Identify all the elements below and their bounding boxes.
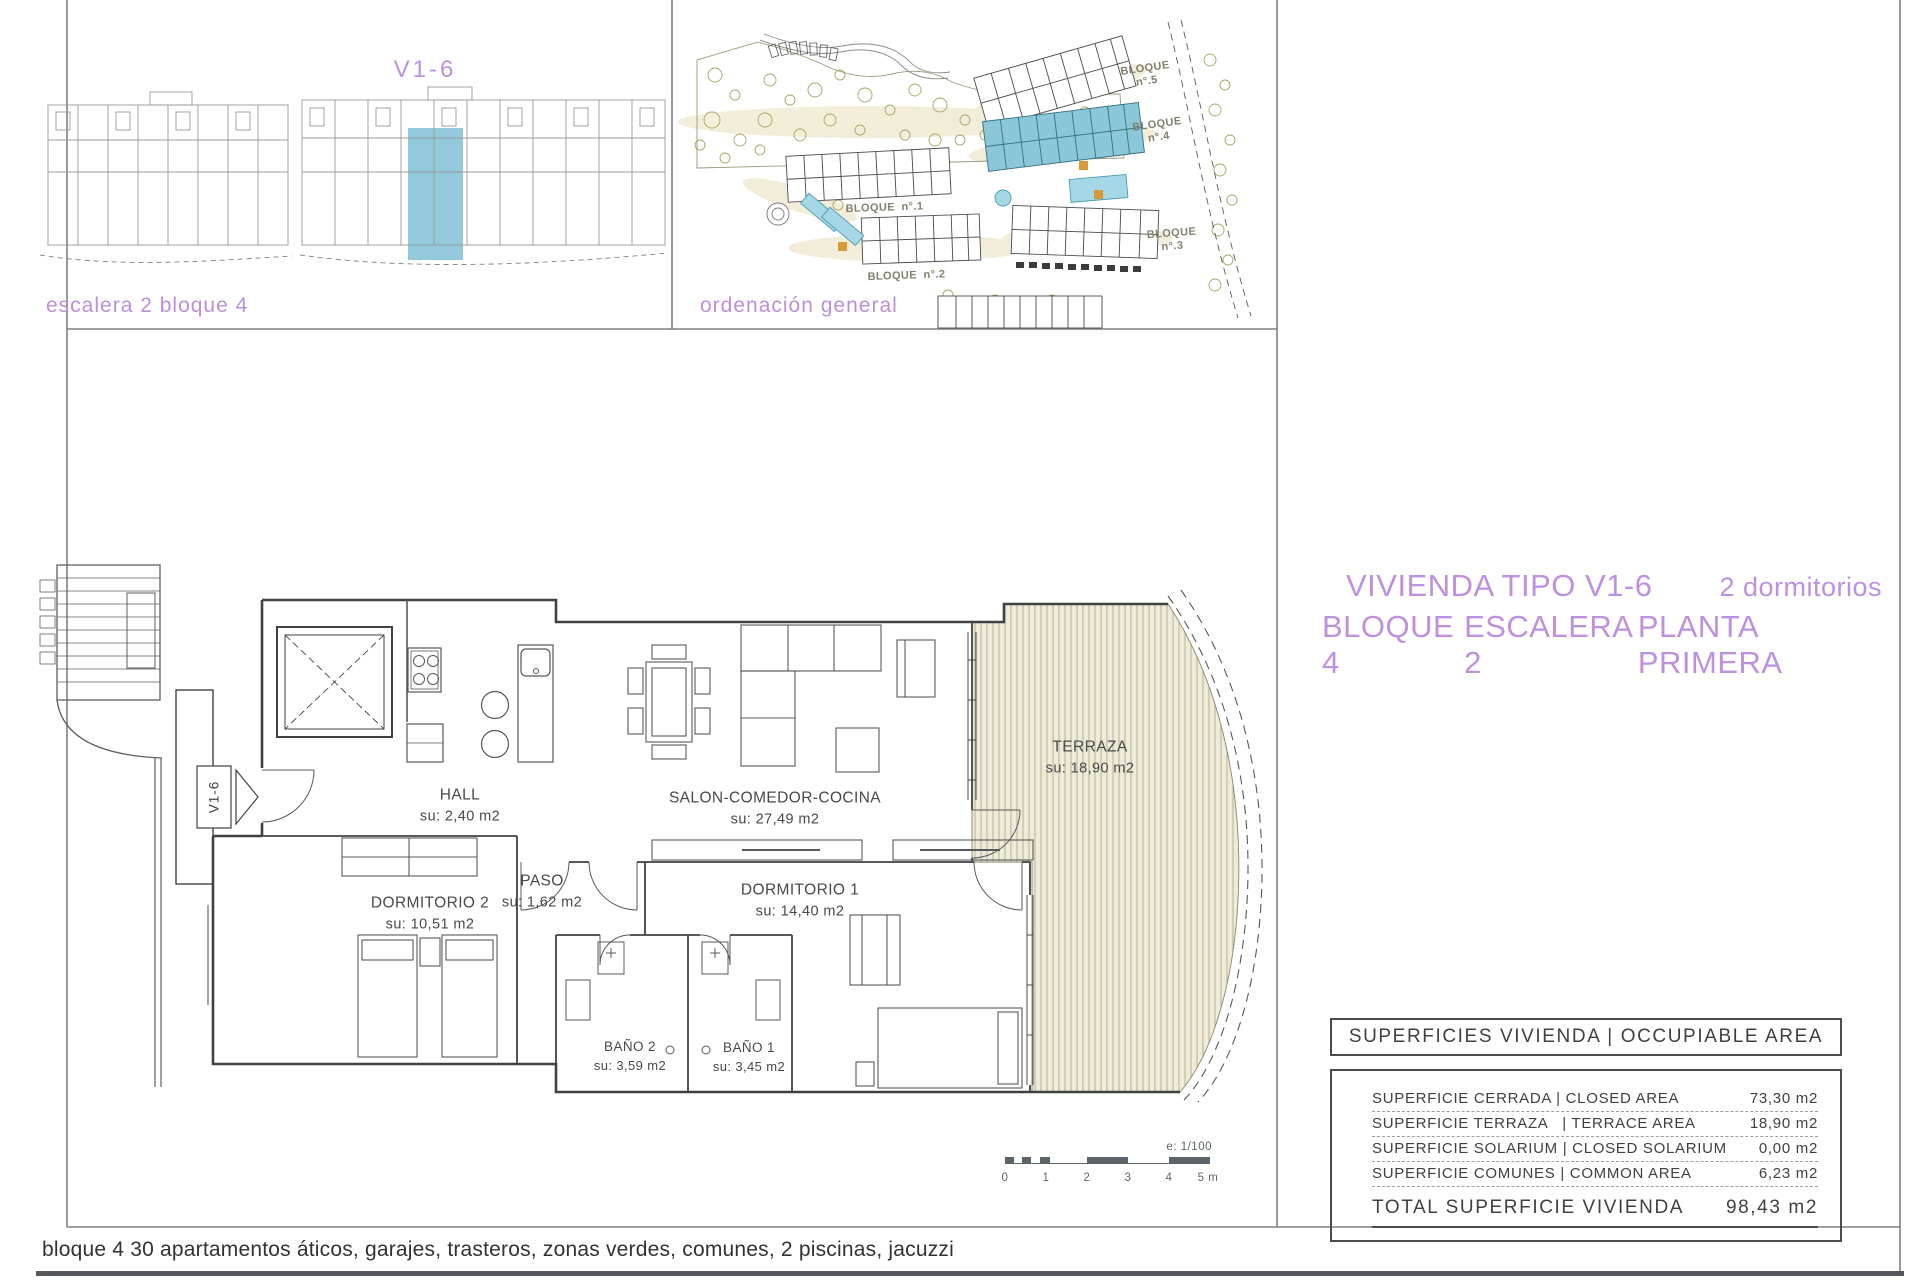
bedroom1-furniture xyxy=(850,915,1022,1088)
unit-marker-label: V1-6 xyxy=(207,781,222,814)
site-caption: ordenación general xyxy=(700,294,898,318)
table-row: SUPERFICIE TERRAZA | TERRACE AREA 18,90 … xyxy=(1372,1112,1818,1137)
bedroom2-furniture xyxy=(342,838,497,1057)
windows xyxy=(208,632,1033,1085)
unit-marker: V1-6 xyxy=(197,766,258,828)
room-label-terraza: TERRAZA su: 18,90 m2 xyxy=(1046,736,1135,779)
dining-set xyxy=(628,645,710,759)
room-label-salon: SALON-COMEDOR-COCINA su: 27,49 m2 xyxy=(669,787,881,830)
table-total-row: TOTAL SUPERFICIE VIVIENDA 98,43 m2 xyxy=(1372,1197,1818,1228)
block-label-3: BLOQUE n°.3 xyxy=(1146,226,1197,255)
areas-table-body: SUPERFICIE CERRADA | CLOSED AREA 73,30 m… xyxy=(1330,1069,1842,1242)
table-row: SUPERFICIE COMUNES | COMMON AREA 6,23 m2 xyxy=(1372,1162,1818,1187)
terrace-deck xyxy=(972,604,1239,1092)
plan-sheet: V1-6 V1-6 escalera 2 bloque 4 ordenación… xyxy=(0,0,1920,1280)
scale-tick-0: 0 xyxy=(1002,1172,1009,1184)
table-row: SUPERFICIE SOLARIUM | CLOSED SOLARIUM 0,… xyxy=(1372,1137,1818,1162)
room-label-hall: HALL su: 2,40 m2 xyxy=(420,784,500,827)
areas-table-header: SUPERFICIES VIVIENDA | OCCUPIABLE AREA xyxy=(1330,1018,1842,1056)
scale-tick-5: 5 m xyxy=(1198,1172,1219,1184)
room-label-bano2: BAÑO 2 su: 3,59 m2 xyxy=(594,1037,666,1075)
scale-tick-3: 3 xyxy=(1125,1172,1132,1184)
room-label-paso: PASO su: 1,62 m2 xyxy=(502,870,582,913)
table-row: SUPERFICIE CERRADA | CLOSED AREA 73,30 m… xyxy=(1372,1087,1818,1112)
footer-note: bloque 4 30 apartamentos áticos, garajes… xyxy=(42,1238,954,1262)
room-label-dormitorio1: DORMITORIO 1 su: 14,40 m2 xyxy=(741,879,859,922)
areas-table: SUPERFICIES VIVIENDA | OCCUPIABLE AREA S… xyxy=(1330,1018,1842,1242)
site-bloque-3 xyxy=(1011,205,1159,258)
locator-caption: escalera 2 bloque 4 xyxy=(46,294,248,318)
title-type: VIVIENDA TIPO V1-6 xyxy=(1322,568,1652,604)
room-label-bano1: BAÑO 1 su: 3,45 m2 xyxy=(713,1038,785,1076)
scale-bar xyxy=(1005,1157,1210,1164)
elevator-shaft xyxy=(277,627,392,737)
title-bedrooms: 2 dormitorios xyxy=(1719,572,1882,603)
page-bottom-rule xyxy=(36,1271,1904,1276)
site-bloque-lower xyxy=(938,296,1102,328)
locator-unit-code: V1-6 xyxy=(394,56,457,84)
room-label-dormitorio2: DORMITORIO 2 su: 10,51 m2 xyxy=(371,892,489,935)
scale-tick-4: 4 xyxy=(1166,1172,1173,1184)
scale-tick-1: 1 xyxy=(1043,1172,1050,1184)
site-bloque-2 xyxy=(861,214,981,264)
kitchen-fixtures xyxy=(407,600,553,762)
title-location: BLOQUE 4 ESCALERA 2 PLANTA PRIMERA xyxy=(1322,609,1882,681)
sheet-title: VIVIENDA TIPO V1-6 2 dormitorios BLOQUE … xyxy=(1322,568,1882,681)
common-stairs xyxy=(40,565,162,1087)
locator-drawing xyxy=(40,87,668,265)
scale-ratio: e: 1/100 xyxy=(1120,1141,1212,1153)
site-bloque-1 xyxy=(786,148,951,202)
highlighted-unit xyxy=(408,128,463,260)
scale-tick-2: 2 xyxy=(1084,1172,1091,1184)
sofa-group xyxy=(741,625,935,772)
